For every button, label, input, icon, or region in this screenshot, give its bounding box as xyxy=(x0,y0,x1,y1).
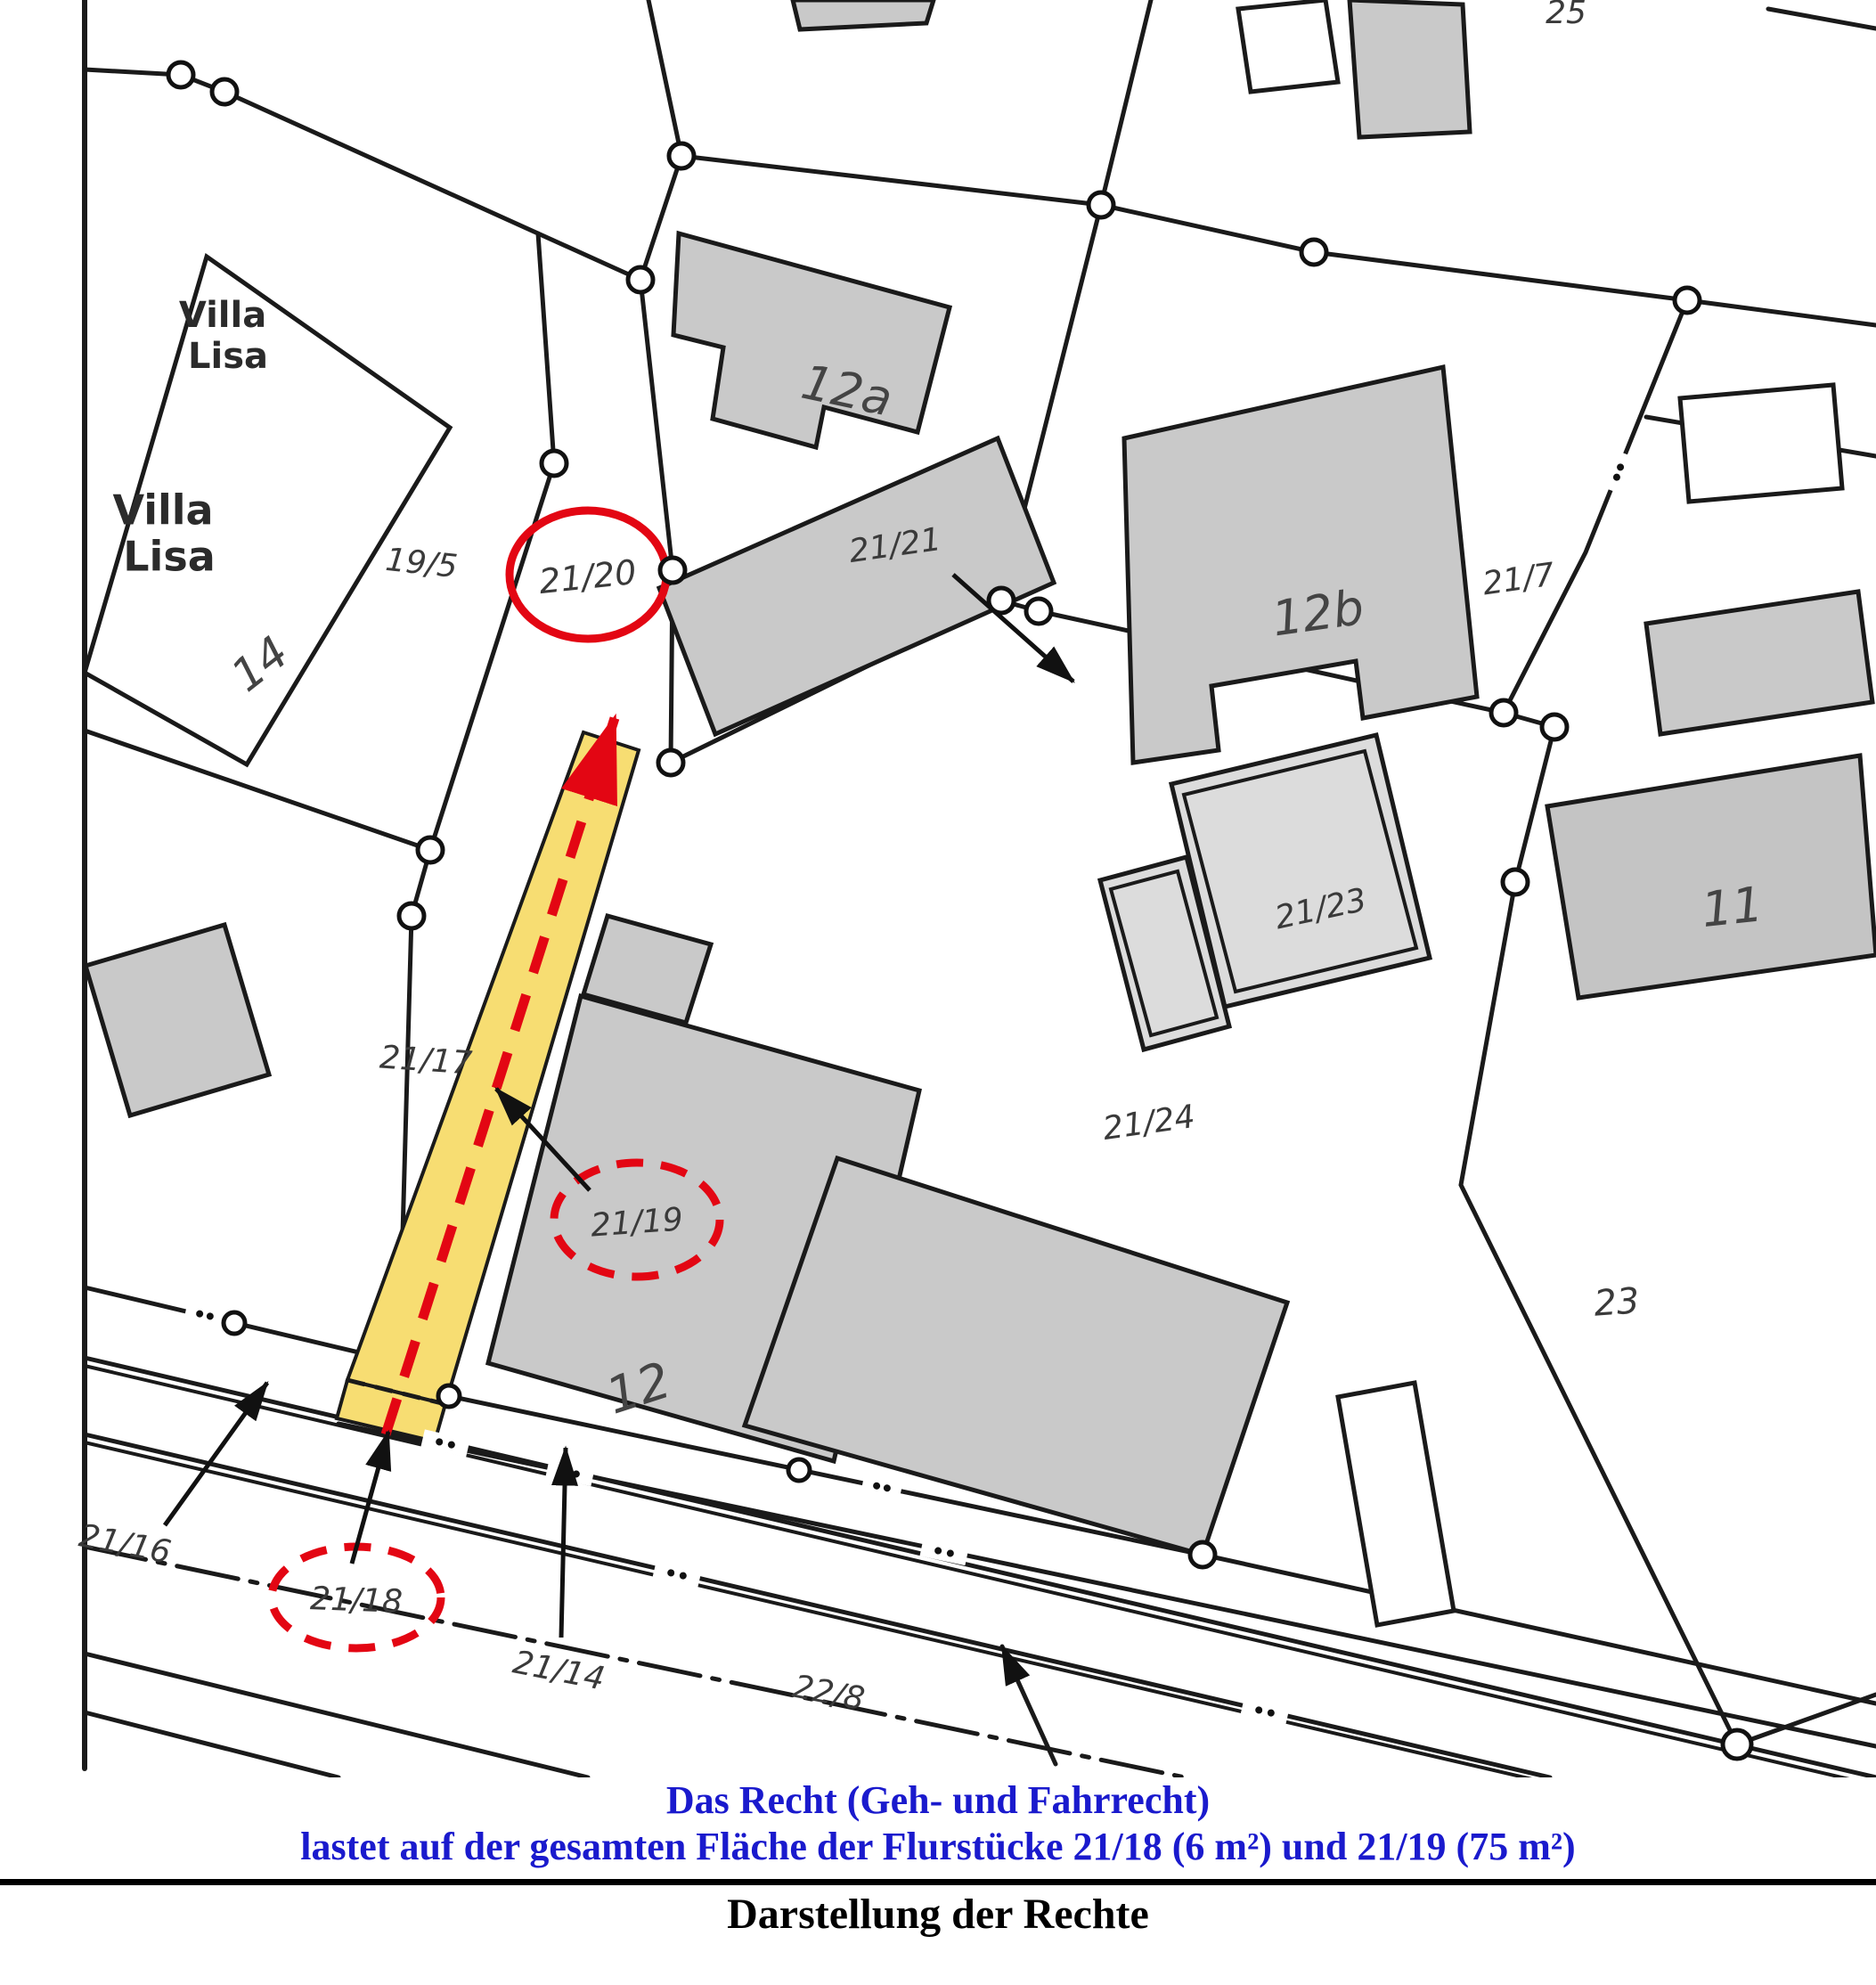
building-12a xyxy=(673,233,950,447)
label-house-11: 11 xyxy=(1699,876,1766,938)
arrow-21-16 xyxy=(165,1383,267,1525)
label-parcel-21-16: 21/16 xyxy=(76,1518,174,1572)
building-white-rect-right xyxy=(1680,385,1842,502)
label-parcel-21-24: 21/24 xyxy=(1101,1099,1197,1148)
label-parcel-19-5: 19/5 xyxy=(384,542,460,585)
label-villa-lisa-lower-line1: Villa xyxy=(112,486,213,535)
label-parcel-23: 23 xyxy=(1593,1280,1641,1324)
label-villa-lisa-upper-line1: Villa xyxy=(179,295,266,336)
building-12-part3 xyxy=(745,1158,1287,1555)
cadastral-map-page: VillaLisaVillaLisa1419/521/2012a21/2112b… xyxy=(0,0,1876,1985)
building-left-21-17 xyxy=(86,925,269,1115)
building-12b xyxy=(1124,367,1477,763)
label-parcel-21-19: 21/19 xyxy=(590,1201,684,1244)
label-parcel-25: 25 xyxy=(1546,0,1586,31)
legend-divider xyxy=(0,1879,1876,1885)
label-parcel-21-7: 21/7 xyxy=(1480,557,1557,603)
label-villa-lisa-lower-line2: Lisa xyxy=(123,533,216,581)
road-edge xyxy=(85,1434,1550,1777)
label-parcel-21-17: 21/17 xyxy=(379,1039,473,1082)
label-parcel-21-18: 21/18 xyxy=(309,1581,403,1621)
legend-line2: lastet auf der gesamten Fläche der Flurs… xyxy=(0,1824,1876,1870)
building-top-white xyxy=(1238,0,1338,92)
page-title: Darstellung der Rechte xyxy=(0,1891,1876,1939)
road-edge-dashdot xyxy=(85,1547,1185,1777)
building-gray-right xyxy=(1646,592,1872,734)
label-parcel-22-8: 22/8 xyxy=(790,1669,868,1719)
label-villa-lisa-upper-line2: Lisa xyxy=(188,336,268,377)
building-11 xyxy=(1547,756,1876,998)
legend-line1: Das Recht (Geh- und Fahrrecht) xyxy=(0,1777,1876,1824)
label-parcel-21-20: 21/20 xyxy=(537,552,639,601)
building-garage-row xyxy=(659,438,1054,734)
building-top-sliver xyxy=(793,0,934,29)
legend: Das Recht (Geh- und Fahrrecht) lastet au… xyxy=(0,1777,1876,1985)
building-top-gray xyxy=(1350,0,1470,137)
cadastral-map-canvas[interactable]: VillaLisaVillaLisa1419/521/2012a21/2112b… xyxy=(0,0,1876,1777)
